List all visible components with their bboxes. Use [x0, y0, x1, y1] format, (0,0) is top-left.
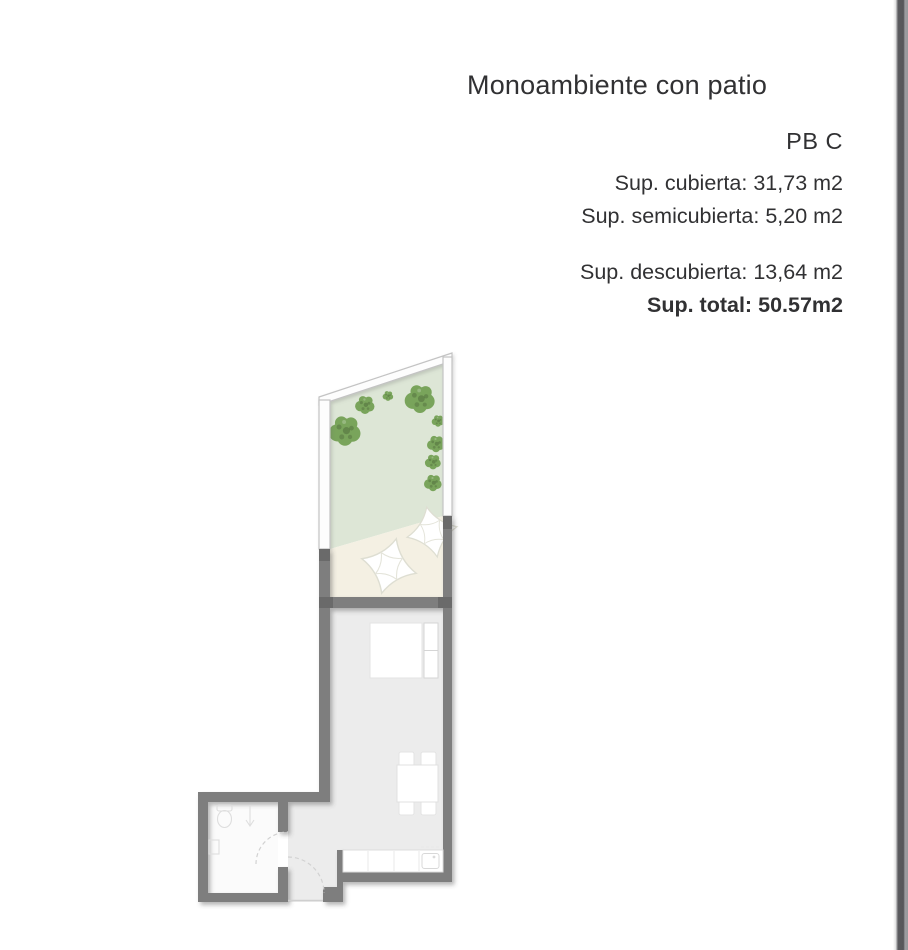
- right-wall: [443, 516, 452, 882]
- measurement-value: 5,20 m2: [765, 204, 843, 228]
- chair: [421, 752, 436, 766]
- bathroom-top-wall: [198, 792, 330, 802]
- measurement-label: Sup. total:: [647, 293, 752, 317]
- bathroom-right-wall-lower: [278, 867, 288, 893]
- bathroom-bottom-wall: [198, 893, 288, 902]
- page-title: Monoambiente con patio: [467, 71, 767, 99]
- chair: [399, 801, 414, 815]
- measurement-row-total: Sup. total:50.57m2: [580, 289, 843, 322]
- kitchen-sink: [422, 854, 439, 869]
- measurement-value: 50.57m2: [758, 293, 843, 317]
- wall-junction: [438, 597, 452, 608]
- patio-right-wall: [443, 357, 452, 516]
- dining-table: [397, 765, 438, 802]
- page-edge-strip: [893, 0, 908, 950]
- unit-label: PB C: [580, 129, 843, 153]
- wall-junction: [319, 597, 333, 608]
- summary-block: PB C Sup. cubierta:31,73 m2 Sup. semicub…: [580, 129, 843, 322]
- measurement-value: 31,73 m2: [753, 171, 843, 195]
- entry-floor: [288, 802, 343, 893]
- measurement-label: Sup. descubierta:: [580, 260, 747, 284]
- bed: [370, 623, 422, 678]
- wall-junction: [319, 549, 330, 561]
- chair: [421, 801, 436, 815]
- page-background: Monoambiente con patio PB C Sup. cubiert…: [0, 0, 908, 950]
- main-bottom-wall: [337, 872, 452, 882]
- chair: [399, 752, 414, 766]
- divider-wall: [319, 597, 452, 608]
- sink-faucet: [433, 856, 436, 859]
- measurement-row: Sup. descubierta:13,64 m2: [580, 256, 843, 289]
- patio-left-wall: [319, 400, 330, 549]
- measurement-row: Sup. cubierta:31,73 m2: [580, 167, 843, 200]
- left-wall: [319, 549, 330, 802]
- measurement-label: Sup. semicubierta:: [581, 204, 759, 228]
- bathroom-left-wall: [198, 792, 208, 902]
- measurement-label: Sup. cubierta:: [615, 171, 748, 195]
- measurement-value: 13,64 m2: [753, 260, 843, 284]
- measurement-row: Sup. semicubierta:5,20 m2: [580, 200, 843, 233]
- wall-junction: [443, 516, 452, 529]
- bathroom-right-wall-upper: [278, 802, 288, 832]
